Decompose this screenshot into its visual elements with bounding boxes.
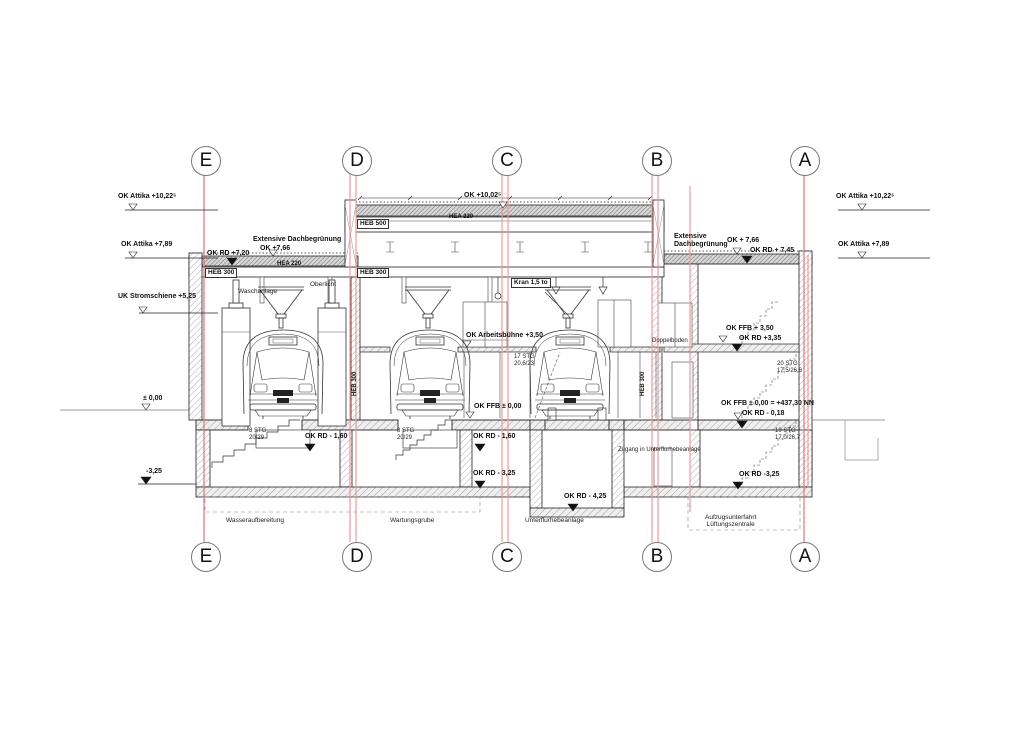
label-stg-8-bay1: 8 STG 20/29 [249, 428, 266, 442]
label-kran: Kran 1,5 to [511, 278, 551, 288]
level-rd-minus-325-right: OK RD -3,25 [739, 471, 779, 479]
level-zero-left: ± 0,00 [143, 395, 162, 403]
level-ok-766-left: OK +7,66 [260, 245, 290, 253]
floor-slab [196, 420, 799, 430]
label-hea-220-mid: HEA 220 [449, 214, 473, 221]
level-ok-766-right: OK + 7,66 [727, 237, 759, 245]
level-ok-rd-720: OK RD +7,20 [207, 250, 249, 258]
train-2 [390, 287, 470, 419]
level-ffb-350: OK FFB + 3,50 [726, 325, 774, 333]
label-heb-300-vertical-b: HEB 300 [640, 372, 647, 396]
level-rd-minus-425: OK RD - 4,25 [564, 493, 606, 501]
room-aufzug-lueftung: Aufzugsunterfahrt Lüftungszentrale [705, 514, 756, 529]
grid-bubble-e-bottom: E [191, 542, 221, 572]
level-ok-1002: OK +10,02⁵ [464, 192, 501, 200]
label-heb-500: HEB 500 [357, 219, 389, 229]
label-zugang: Zugang in Unterflurhebeanlage [618, 447, 701, 454]
label-doppelboden: Doppelboden [652, 338, 688, 345]
level-minus-325-left: -3,25 [146, 468, 162, 476]
label-oberlicht: Oberlicht [310, 281, 336, 288]
level-rd-minus-160-bay1: OK RD - 1,60 [305, 433, 347, 441]
grid-bubble-b-bottom: B [642, 542, 672, 572]
level-stromschiene: UK Stromschiene +5,25 [118, 293, 196, 301]
label-stg-8-bay2: 8 STG 20/29 [397, 428, 414, 442]
room-wasseraufbereitung: Wasseraufbereitung [226, 517, 284, 524]
level-rd-minus-325-mid: OK RD - 3,25 [473, 470, 515, 478]
level-attika-left-high: OK Attika +10,22⁵ [118, 193, 176, 201]
grid-bubble-a-bottom: A [790, 542, 820, 572]
level-ok-rd-745: OK RD + 7,45 [750, 247, 794, 255]
label-hea-220-left: HEA 220 [277, 261, 301, 268]
label-waschanlage: Waschanlage [238, 288, 277, 295]
label-heb-300-left: HEB 300 [205, 268, 237, 278]
label-stg-19: 19 STG 17,0/26,7 [775, 428, 800, 442]
grid-bubble-d-top: D [342, 146, 372, 176]
grid-bubble-a-top: A [790, 146, 820, 176]
section-drawing-sheet: E D C B A E D C B A OK Attika +10,22⁵ OK… [0, 0, 1024, 731]
label-heb-300-mid: HEB 300 [357, 268, 389, 278]
level-ffb-zero-nn: OK FFB ± 0,00 = +437,30 NN [721, 400, 814, 408]
level-arbeitsbuehne: OK Arbeitsbühne +3,50 [466, 332, 543, 340]
grid-bubble-c-top: C [492, 146, 522, 176]
label-stg-17: 17 STG 20,6/23 [514, 354, 535, 368]
grid-bubble-d-bottom: D [342, 542, 372, 572]
grid-bubble-e-top: E [191, 146, 221, 176]
level-rd-335: OK RD +3,35 [739, 335, 781, 343]
level-rd-minus-018: OK RD - 0,18 [742, 410, 784, 418]
level-attika-right-high: OK Attika +10,22⁵ [836, 193, 894, 201]
label-dachbegruenung-left: Extensive Dachbegrünung [253, 236, 341, 244]
section-linework [0, 0, 1024, 731]
room-wartungsgrube: Wartungsgrube [390, 517, 434, 524]
label-stg-20: 20 STG 17,5/26,6 [777, 361, 802, 375]
grid-bubble-c-bottom: C [492, 542, 522, 572]
level-rd-minus-160-bay2: OK RD - 1,60 [473, 433, 515, 441]
train-1 [243, 287, 323, 419]
label-heb-300-vertical-d: HEB 300 [352, 372, 359, 396]
level-ffb-zero-hall: OK FFB ± 0,00 [474, 403, 521, 411]
room-unterflurhebeanlage: Unterflurhebeanlage [525, 517, 584, 524]
level-attika-left-low: OK Attika +7,89 [121, 241, 172, 249]
grid-bubble-b-top: B [642, 146, 672, 176]
label-dachbegruenung-right: Extensive Dachbegrünung [674, 233, 728, 249]
level-attika-right-low: OK Attika +7,89 [838, 241, 889, 249]
